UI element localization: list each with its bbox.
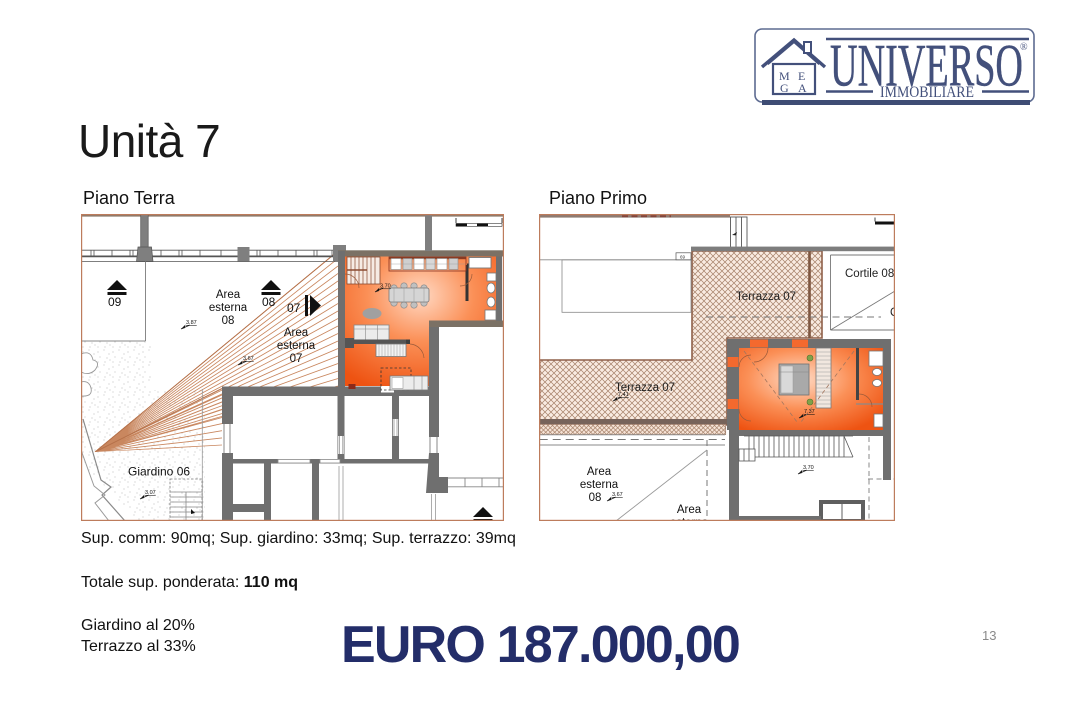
svg-text:Area: Area	[284, 327, 309, 339]
svg-text:07: 07	[287, 301, 301, 315]
svg-text:Cortile 08: Cortile 08	[845, 268, 894, 280]
svg-text:3.87: 3.87	[186, 320, 197, 326]
svg-text:3.70: 3.70	[380, 284, 391, 290]
svg-text:esterna: esterna	[580, 479, 619, 491]
svg-text:esterna: esterna	[277, 340, 316, 352]
svg-text:Area: Area	[677, 504, 702, 516]
svg-text:IMMOBILIARE: IMMOBILIARE	[880, 84, 974, 101]
svg-text:7.37: 7.37	[804, 409, 815, 415]
svg-text:Giardino 06: Giardino 06	[128, 465, 190, 479]
svg-text:09: 09	[108, 295, 122, 309]
svg-text:07: 07	[290, 353, 303, 365]
svg-text:3.07: 3.07	[145, 490, 156, 496]
svg-text:esterna: esterna	[209, 302, 248, 314]
svg-text:3.67: 3.67	[243, 356, 254, 362]
svg-text:08: 08	[262, 295, 276, 309]
svg-text:08: 08	[589, 492, 602, 504]
svg-text:7.41: 7.41	[618, 392, 629, 398]
svg-text:Terrazza 07: Terrazza 07	[736, 291, 796, 303]
svg-text:G: G	[780, 81, 789, 95]
svg-text:A: A	[798, 81, 807, 95]
svg-text:08: 08	[222, 315, 235, 327]
svg-text:®: ®	[1020, 42, 1028, 53]
svg-text:3.67: 3.67	[612, 492, 623, 498]
svg-text:Area: Area	[587, 466, 612, 478]
svg-text:3.70: 3.70	[803, 465, 814, 471]
svg-text:69: 69	[680, 254, 686, 259]
svg-text:Area: Area	[216, 289, 241, 301]
